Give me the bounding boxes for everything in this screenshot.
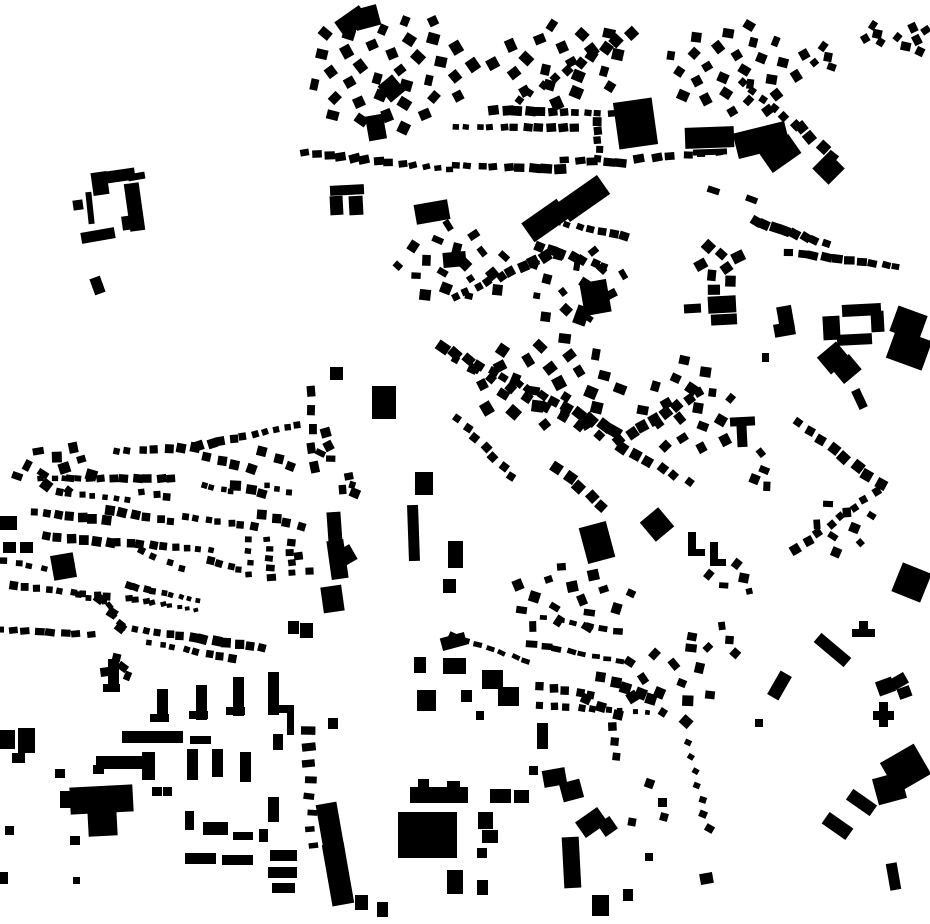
building: [688, 549, 705, 556]
building: [537, 723, 548, 749]
row-house: [302, 759, 315, 768]
row-house: [301, 726, 316, 735]
row-house: [192, 514, 200, 522]
row-house: [75, 591, 82, 598]
row-house: [831, 254, 843, 264]
row-house: [195, 598, 200, 603]
row-house: [228, 520, 235, 527]
cluster-house: [52, 452, 62, 463]
row-house: [597, 227, 607, 236]
row-house: [42, 509, 51, 518]
row-house: [571, 109, 579, 116]
row-house: [113, 495, 120, 502]
row-house: [309, 424, 317, 434]
row-house: [160, 642, 166, 648]
row-house: [586, 157, 597, 165]
row-house: [523, 123, 533, 132]
row-house: [664, 152, 674, 160]
building: [50, 552, 77, 581]
building: [645, 853, 653, 861]
row-house: [452, 162, 460, 169]
row-house: [593, 136, 601, 144]
building: [443, 579, 456, 593]
building: [658, 798, 667, 807]
row-house: [149, 540, 159, 550]
row-house: [217, 456, 227, 466]
row-house: [844, 256, 855, 264]
cluster-house: [566, 580, 579, 593]
building: [121, 215, 133, 230]
building: [328, 718, 338, 729]
building: [349, 196, 364, 216]
building: [189, 711, 208, 719]
cluster-house: [492, 284, 503, 296]
building: [212, 749, 223, 777]
map-canvas: [0, 0, 930, 924]
row-house: [165, 444, 174, 453]
row-house: [560, 686, 569, 695]
building: [226, 707, 245, 715]
cluster-house: [540, 311, 551, 322]
row-house: [45, 628, 56, 636]
row-house: [245, 536, 252, 542]
row-house: [195, 546, 202, 553]
row-house: [546, 123, 556, 132]
cluster-house: [718, 621, 726, 630]
row-house: [153, 491, 160, 498]
row-house: [595, 671, 606, 682]
building: [330, 196, 344, 216]
cluster-house: [326, 455, 336, 461]
cluster-house: [66, 474, 75, 482]
row-house: [452, 124, 459, 130]
building: [20, 542, 33, 553]
row-house: [575, 156, 586, 164]
row-house: [613, 628, 623, 635]
row-house: [89, 493, 95, 499]
cluster-house: [813, 519, 820, 529]
cluster-house: [746, 79, 754, 89]
building: [0, 516, 17, 530]
row-house: [558, 123, 569, 133]
row-house: [166, 630, 174, 638]
row-house: [235, 640, 244, 649]
cluster-house: [708, 285, 720, 295]
row-house: [127, 539, 136, 548]
row-house: [645, 710, 650, 715]
row-house: [133, 474, 144, 484]
row-house: [488, 163, 497, 171]
row-house: [308, 842, 318, 849]
building: [447, 870, 463, 894]
row-house: [288, 569, 295, 575]
building: [476, 711, 484, 720]
row-house: [305, 826, 315, 832]
row-house: [235, 566, 242, 573]
building: [482, 670, 503, 689]
row-house: [612, 752, 620, 760]
cluster-house: [527, 386, 540, 396]
row-house: [603, 158, 615, 167]
row-house: [610, 737, 619, 746]
row-house: [71, 630, 81, 638]
row-house: [272, 426, 279, 433]
row-house: [477, 124, 484, 130]
row-house: [131, 596, 139, 602]
row-house: [272, 514, 282, 524]
building: [270, 850, 297, 861]
row-house: [383, 159, 393, 167]
row-house: [578, 704, 586, 712]
cluster-house: [422, 255, 431, 266]
row-house: [9, 627, 18, 634]
row-house: [293, 421, 301, 429]
row-house: [149, 588, 156, 595]
cluster-house: [842, 507, 851, 517]
building: [762, 353, 769, 362]
building: [87, 808, 117, 836]
row-house: [33, 585, 40, 592]
building: [755, 719, 763, 727]
row-house: [244, 548, 251, 554]
building: [272, 883, 295, 893]
cluster-house: [666, 51, 675, 61]
row-house: [589, 705, 597, 713]
building: [320, 585, 344, 614]
row-house: [374, 157, 385, 166]
cluster-house: [559, 408, 568, 418]
building: [300, 623, 313, 638]
row-house: [266, 546, 273, 552]
building: [627, 817, 636, 826]
building-footprint-map: [0, 0, 930, 924]
row-house: [584, 109, 592, 116]
row-house: [175, 631, 184, 640]
row-house: [266, 564, 275, 571]
cluster-house: [763, 481, 770, 491]
row-house: [0, 557, 7, 564]
building: [187, 749, 198, 780]
building: [448, 541, 463, 568]
row-house: [593, 117, 602, 126]
row-house: [608, 110, 616, 117]
row-house: [246, 484, 258, 495]
row-house: [55, 488, 64, 497]
building: [72, 199, 83, 210]
cluster-house: [699, 366, 711, 378]
row-house: [559, 156, 569, 163]
row-house: [286, 489, 292, 495]
building: [837, 333, 873, 346]
row-house: [303, 793, 314, 800]
building: [482, 830, 498, 843]
row-house: [141, 512, 150, 521]
row-house: [157, 515, 165, 523]
building: [623, 889, 633, 901]
building: [233, 832, 253, 840]
row-house: [592, 654, 600, 659]
row-house: [265, 555, 274, 562]
row-house: [161, 590, 168, 597]
row-house: [229, 459, 240, 470]
building: [70, 836, 80, 845]
row-house: [109, 474, 118, 482]
cluster-house: [722, 28, 734, 39]
row-house: [102, 494, 108, 500]
row-house: [9, 581, 19, 591]
row-house: [533, 123, 543, 132]
row-house: [307, 405, 315, 415]
row-house: [334, 152, 346, 162]
row-house: [697, 151, 705, 157]
cluster-house: [558, 333, 571, 344]
building: [685, 126, 735, 149]
cluster-house: [725, 636, 734, 645]
row-house: [526, 640, 538, 648]
row-house: [52, 533, 61, 542]
cluster-house: [692, 402, 704, 414]
building: [222, 855, 253, 865]
building: [287, 706, 294, 735]
building: [5, 826, 14, 835]
row-house: [307, 810, 317, 816]
building: [268, 867, 297, 878]
row-house: [31, 508, 38, 515]
row-house: [91, 536, 102, 547]
building: [163, 787, 172, 796]
building: [477, 848, 487, 858]
row-house: [302, 742, 317, 751]
row-house: [514, 163, 525, 172]
building: [18, 728, 35, 753]
row-house: [264, 483, 269, 488]
row-house: [214, 518, 220, 524]
row-house: [230, 434, 239, 443]
building: [190, 736, 211, 744]
row-house: [529, 163, 541, 173]
row-house: [486, 124, 493, 131]
building: [443, 658, 466, 674]
row-house: [570, 123, 580, 131]
row-house: [138, 488, 145, 495]
building: [514, 790, 529, 803]
cluster-house: [338, 485, 346, 495]
cluster-house: [823, 52, 833, 62]
row-house: [21, 583, 29, 591]
building: [414, 657, 426, 673]
row-house: [87, 631, 96, 638]
building: [12, 753, 25, 763]
row-house: [168, 644, 175, 651]
row-house: [540, 163, 553, 173]
row-house: [541, 643, 552, 650]
row-house: [857, 258, 867, 266]
row-house: [184, 545, 191, 552]
row-house: [67, 534, 77, 544]
row-house: [633, 709, 638, 714]
row-house: [85, 595, 91, 601]
row-house: [263, 537, 270, 543]
row-house: [221, 486, 227, 492]
cluster-house: [705, 690, 715, 699]
row-house: [236, 521, 244, 529]
row-house: [208, 547, 215, 554]
building: [55, 769, 65, 778]
row-house: [551, 703, 559, 711]
building: [185, 853, 216, 864]
row-house: [153, 629, 161, 637]
row-house: [245, 571, 252, 577]
row-house: [284, 424, 291, 431]
row-house: [113, 448, 121, 456]
building: [142, 752, 155, 780]
row-house: [146, 640, 152, 646]
row-house: [609, 229, 620, 239]
row-house: [312, 150, 322, 158]
row-house: [123, 447, 131, 455]
row-house: [540, 615, 547, 620]
row-house: [20, 627, 30, 635]
row-house: [205, 516, 212, 523]
row-house: [593, 110, 600, 117]
row-house: [46, 586, 53, 593]
row-house: [247, 560, 254, 566]
row-house: [245, 641, 255, 651]
row-house: [124, 496, 131, 503]
building: [710, 559, 726, 566]
cluster-house: [531, 400, 544, 413]
row-house: [182, 513, 190, 521]
row-house: [119, 624, 126, 631]
cluster-house: [685, 643, 697, 652]
row-house: [463, 162, 471, 169]
row-house: [562, 703, 570, 711]
cluster-house: [765, 74, 777, 85]
cluster-house: [719, 582, 729, 588]
row-house: [157, 474, 167, 483]
row-house: [112, 538, 120, 546]
cluster-house: [529, 621, 536, 632]
row-house: [511, 106, 523, 116]
row-house: [554, 164, 567, 175]
row-house: [504, 163, 514, 172]
row-house: [16, 560, 23, 566]
row-house: [540, 217, 547, 223]
row-house: [185, 606, 190, 610]
building: [529, 766, 538, 775]
row-house: [257, 509, 267, 519]
row-house: [294, 552, 304, 561]
row-house: [54, 510, 64, 520]
building: [0, 872, 8, 884]
row-house: [139, 446, 147, 454]
building: [562, 837, 582, 889]
row-house: [227, 654, 237, 664]
cluster-house: [557, 563, 566, 571]
row-house: [159, 542, 168, 551]
row-house: [221, 638, 231, 648]
row-house: [306, 442, 316, 454]
row-house: [608, 722, 617, 731]
building: [268, 672, 279, 715]
building: [185, 811, 194, 830]
row-house: [488, 105, 500, 116]
row-house: [525, 106, 537, 117]
row-house: [462, 124, 469, 130]
building: [240, 752, 251, 782]
row-house: [74, 475, 81, 482]
row-house: [784, 249, 793, 256]
row-house: [201, 452, 211, 462]
row-house: [891, 263, 900, 270]
building: [490, 789, 511, 803]
row-house: [535, 107, 545, 116]
building: [273, 734, 283, 750]
row-house: [614, 158, 627, 168]
row-house: [0, 627, 4, 633]
building: [330, 184, 364, 196]
row-house: [142, 474, 152, 483]
row-house: [96, 474, 105, 482]
row-house: [606, 707, 613, 714]
cluster-house: [707, 269, 717, 281]
row-house: [715, 149, 723, 156]
building: [859, 621, 868, 634]
row-house: [479, 163, 487, 170]
cluster-house: [708, 388, 717, 397]
building: [259, 829, 268, 842]
row-house: [61, 629, 71, 637]
building: [708, 295, 737, 313]
cluster-house: [100, 667, 110, 677]
building: [418, 779, 429, 789]
building: [150, 714, 169, 722]
row-house: [306, 386, 315, 397]
row-house: [101, 515, 112, 526]
row-house: [104, 505, 115, 516]
building: [498, 687, 519, 706]
building: [415, 472, 433, 495]
cluster-house: [419, 289, 431, 301]
row-house: [56, 587, 63, 594]
building: [592, 895, 609, 916]
row-house: [176, 443, 187, 454]
row-house: [536, 702, 543, 709]
row-house: [560, 108, 569, 116]
row-house: [131, 625, 138, 632]
row-house: [603, 656, 611, 661]
row-house: [52, 476, 58, 481]
building: [613, 98, 658, 150]
row-house: [149, 445, 157, 453]
row-house: [287, 539, 296, 547]
row-house: [87, 514, 97, 524]
building: [103, 684, 120, 692]
building: [447, 781, 460, 790]
row-house: [163, 493, 171, 501]
building: [203, 822, 228, 835]
building: [3, 542, 16, 553]
building: [122, 731, 183, 743]
row-house: [593, 126, 602, 135]
row-house: [267, 574, 277, 582]
row-house: [535, 682, 544, 691]
row-house: [238, 432, 246, 440]
cluster-house: [823, 501, 833, 508]
building: [372, 386, 396, 419]
building: [398, 812, 457, 858]
row-house: [79, 535, 89, 545]
